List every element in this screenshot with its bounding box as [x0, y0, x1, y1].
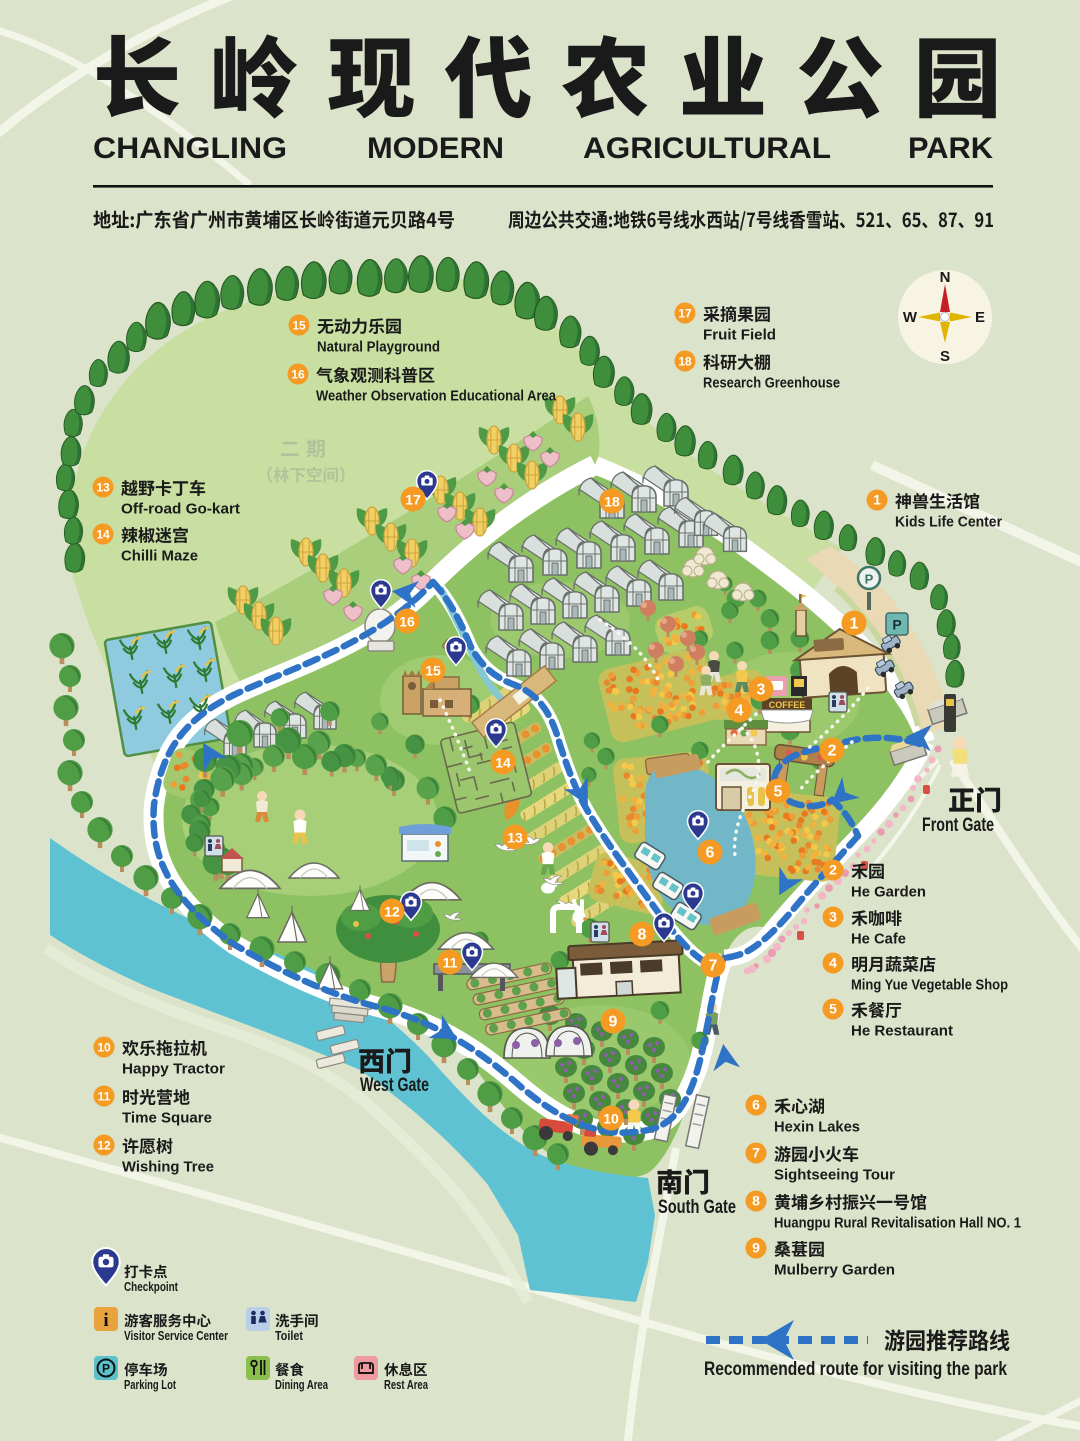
svg-text:10: 10: [97, 1041, 111, 1055]
svg-text:4: 4: [735, 703, 744, 720]
svg-text:13: 13: [96, 481, 110, 495]
svg-text:3: 3: [757, 682, 766, 699]
svg-text:Weather Observation Educationa: Weather Observation Educational Area: [316, 389, 557, 405]
svg-text:P: P: [865, 572, 874, 587]
svg-text:3: 3: [829, 909, 837, 925]
svg-text:Research Greenhouse: Research Greenhouse: [703, 376, 840, 392]
svg-text:Time Square: Time Square: [122, 1111, 212, 1127]
svg-text:5: 5: [829, 1001, 837, 1017]
svg-text:COFFEE: COFFEE: [769, 700, 806, 710]
svg-text:4: 4: [829, 955, 837, 971]
svg-text:7: 7: [752, 1145, 760, 1161]
svg-text:CHANGLING: CHANGLING: [93, 132, 287, 165]
svg-text:7: 7: [709, 958, 718, 975]
svg-text:2: 2: [828, 743, 837, 760]
svg-text:Natural Playground: Natural Playground: [317, 340, 440, 356]
svg-text:Parking Lot: Parking Lot: [124, 1377, 176, 1392]
svg-text:8: 8: [752, 1193, 760, 1209]
svg-text:Dining Area: Dining Area: [275, 1377, 329, 1392]
svg-text:N: N: [940, 269, 951, 286]
svg-text:Hexin Lakes: Hexin Lakes: [774, 1120, 860, 1136]
svg-text:AGRICULTURAL: AGRICULTURAL: [583, 132, 831, 165]
svg-text:P: P: [892, 617, 901, 633]
svg-text:11: 11: [443, 955, 458, 971]
svg-text:1: 1: [873, 492, 881, 508]
svg-text:E: E: [975, 309, 985, 326]
svg-text:5: 5: [774, 784, 783, 801]
svg-text:MODERN: MODERN: [367, 132, 504, 165]
svg-text:He Cafe: He Cafe: [851, 932, 906, 948]
svg-text:18: 18: [678, 355, 692, 369]
svg-text:12: 12: [97, 1139, 111, 1153]
svg-text:9: 9: [752, 1240, 760, 1256]
svg-text:PARK: PARK: [908, 132, 993, 165]
svg-text:Huangpu Rural Revitalisation H: Huangpu Rural Revitalisation Hall NO. 1: [774, 1216, 1021, 1232]
svg-text:11: 11: [98, 1090, 111, 1104]
svg-text:17: 17: [405, 492, 421, 508]
svg-text:16: 16: [399, 614, 415, 630]
svg-text:10: 10: [603, 1111, 619, 1127]
svg-text:2: 2: [829, 862, 837, 878]
svg-text:18: 18: [604, 494, 620, 510]
svg-text:Visitor Service Center: Visitor Service Center: [124, 1328, 228, 1343]
svg-text:West Gate: West Gate: [360, 1075, 429, 1096]
svg-text:Sightseeing Tour: Sightseeing Tour: [774, 1168, 895, 1184]
svg-text:Toilet: Toilet: [275, 1328, 304, 1343]
svg-text:6: 6: [706, 845, 715, 862]
svg-text:13: 13: [507, 830, 523, 846]
svg-text:Checkpoint: Checkpoint: [124, 1279, 179, 1294]
svg-text:15: 15: [292, 319, 306, 333]
svg-text:8: 8: [638, 927, 647, 944]
svg-text:P: P: [102, 1362, 110, 1376]
svg-text:Recommended route for visiting: Recommended route for visiting the park: [704, 1359, 1007, 1380]
svg-text:14: 14: [495, 755, 511, 771]
svg-text:W: W: [903, 309, 918, 326]
svg-text:S: S: [940, 348, 950, 365]
svg-text:12: 12: [384, 904, 400, 920]
svg-text:Mulberry Garden: Mulberry Garden: [774, 1263, 895, 1279]
svg-text:Chilli Maze: Chilli Maze: [121, 549, 198, 565]
svg-text:He Restaurant: He Restaurant: [851, 1024, 953, 1040]
svg-text:6: 6: [752, 1097, 760, 1113]
svg-text:South Gate: South Gate: [658, 1197, 736, 1218]
svg-text:Happy Tractor: Happy Tractor: [122, 1062, 225, 1078]
svg-text:17: 17: [678, 307, 692, 321]
svg-text:9: 9: [609, 1014, 618, 1031]
svg-text:Kids Life Center: Kids Life Center: [895, 515, 1002, 531]
svg-text:Fruit Field: Fruit Field: [703, 328, 776, 344]
svg-text:15: 15: [425, 663, 441, 679]
svg-text:Off-road Go-kart: Off-road Go-kart: [121, 502, 240, 518]
svg-text:He Garden: He Garden: [851, 885, 926, 901]
svg-text:Ming Yue Vegetable Shop: Ming Yue Vegetable Shop: [851, 978, 1008, 994]
svg-text:i: i: [103, 1310, 108, 1331]
svg-text:16: 16: [291, 368, 305, 382]
svg-text:1: 1: [850, 616, 859, 633]
svg-text:14: 14: [96, 528, 110, 542]
svg-text:Wishing Tree: Wishing Tree: [122, 1160, 214, 1176]
svg-text:Front Gate: Front Gate: [922, 815, 994, 836]
svg-text:Rest Area: Rest Area: [384, 1377, 429, 1392]
